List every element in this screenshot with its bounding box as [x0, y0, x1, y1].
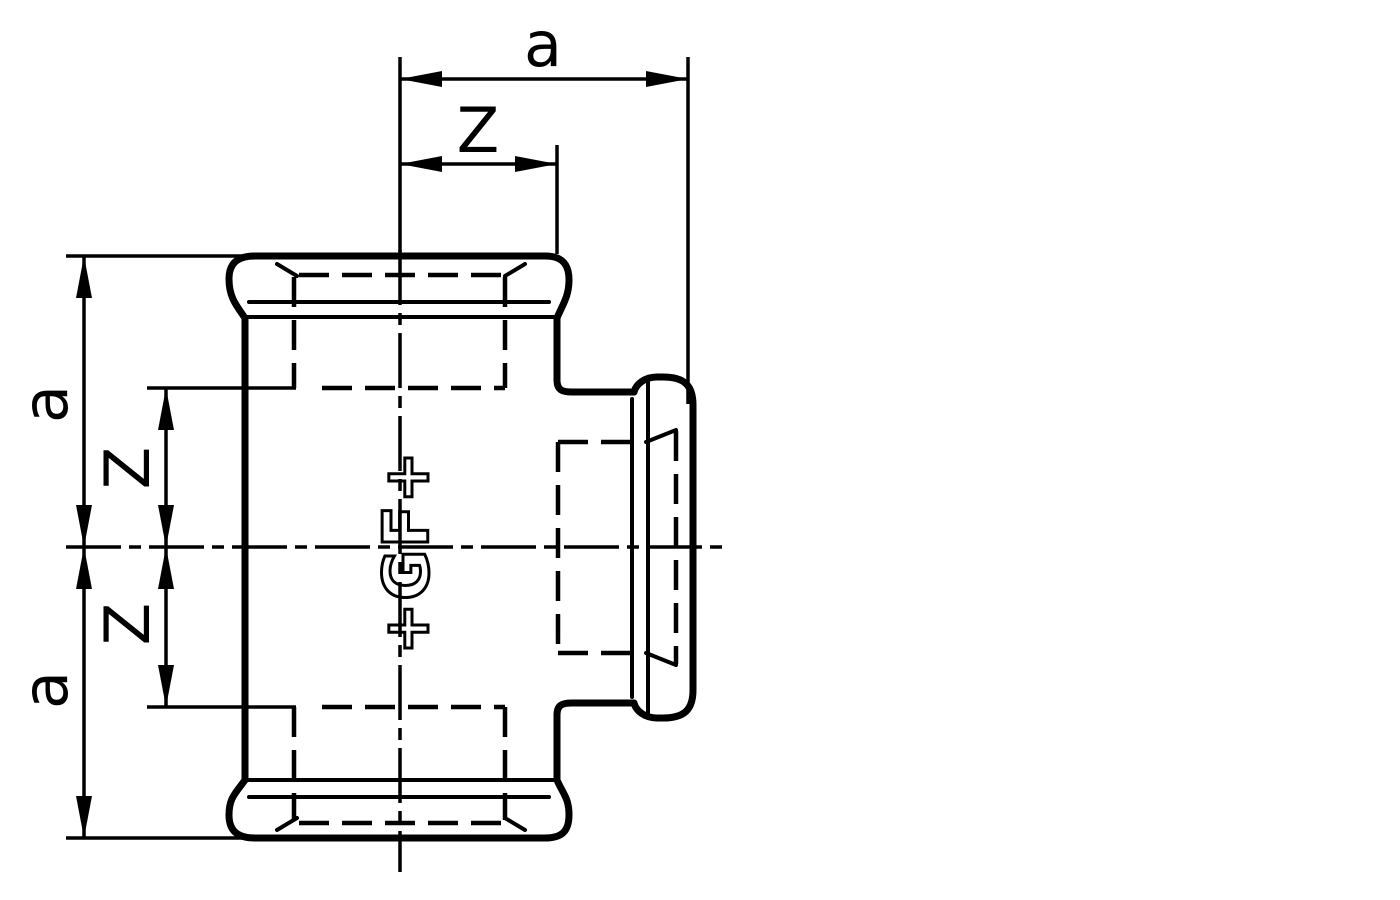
- right-socket-chamfer-top: [646, 430, 676, 442]
- top-socket-chamfer-left: [277, 264, 297, 276]
- tee-fitting-drawing: a Z a a Z Z: [0, 0, 1400, 900]
- arrowhead-left: [400, 156, 442, 172]
- dim-label-a-left-upper: a: [9, 385, 82, 423]
- dim-label-z-top: Z: [457, 94, 499, 167]
- arrowhead-top: [76, 256, 92, 298]
- dim-label-a-top: a: [524, 8, 562, 81]
- arrowhead-left: [400, 71, 442, 87]
- gf-brand-mark: +GF+: [370, 449, 443, 654]
- dim-label-z-left-upper: Z: [91, 447, 164, 489]
- arrowhead-top: [158, 388, 174, 430]
- dim-label-a-left-lower: a: [9, 671, 82, 709]
- arrowhead-center-upper: [76, 505, 92, 547]
- arrowhead-center-upper: [158, 505, 174, 547]
- arrowhead-right: [515, 156, 557, 172]
- arrowhead-bottom: [76, 796, 92, 838]
- top-socket-chamfer-right: [505, 264, 525, 276]
- dim-label-z-left-lower: Z: [91, 603, 164, 645]
- technical-drawing-page: a Z a a Z Z: [0, 0, 1400, 900]
- arrowhead-right: [646, 71, 688, 87]
- arrowhead-center-lower: [76, 547, 92, 589]
- bottom-socket-chamfer-left: [277, 818, 297, 830]
- right-wall-upper-and-branch-top: [557, 318, 634, 392]
- arrowhead-bottom: [158, 665, 174, 707]
- branch-bottom-and-right-wall-lower: [557, 703, 634, 780]
- right-socket-chamfer-bottom: [646, 653, 676, 665]
- bottom-socket-chamfer-right: [505, 818, 525, 830]
- arrowhead-center-lower: [158, 547, 174, 589]
- hidden-thread-lines: [294, 275, 676, 823]
- dimension-top-z: Z: [400, 94, 557, 172]
- dimension-top-a: a: [400, 8, 688, 87]
